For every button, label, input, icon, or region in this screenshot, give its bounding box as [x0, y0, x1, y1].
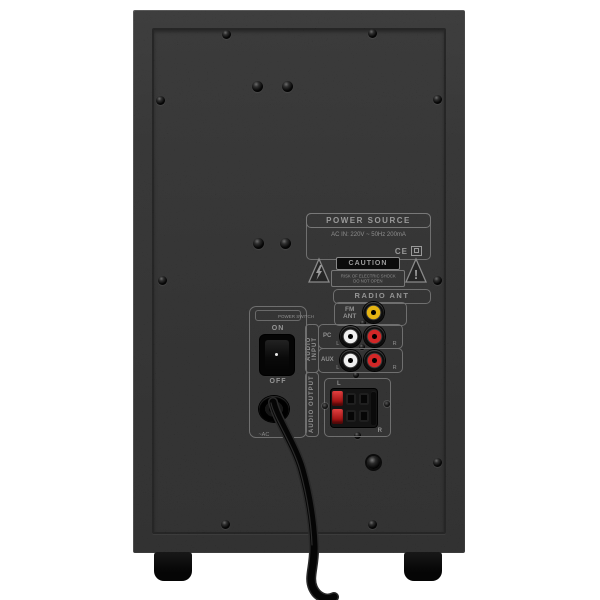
aux-right-jack — [364, 350, 385, 371]
pc-right-label: R — [392, 340, 396, 346]
terminal-hole — [346, 410, 356, 422]
screw — [433, 276, 442, 285]
terminal-hole — [359, 410, 369, 422]
aux-left-jack — [340, 350, 361, 371]
pc-left-label: L — [336, 340, 339, 346]
terminal-hole — [346, 393, 356, 405]
aux-right-label: R — [392, 364, 396, 370]
output-right-label: R — [378, 428, 382, 434]
keyhole-mount — [253, 238, 264, 249]
keyhole-mount — [252, 81, 263, 92]
screw — [222, 30, 231, 39]
switch-off-label: OFF — [250, 378, 306, 385]
pc-input-row: PC L R — [318, 324, 403, 349]
screw — [221, 520, 230, 529]
pc-row-name: PC — [323, 333, 331, 339]
power-switch-area: POWER SWITCH ON OFF ~AC — [249, 306, 307, 438]
bolt — [367, 456, 380, 469]
caution-label: ! CAUTION RISK OF ELECTRIC SHOCK DO NOT … — [306, 256, 429, 288]
ce-mark-icon: CE — [395, 247, 408, 256]
audio-output-label: AUDIO OUTPUT — [305, 372, 319, 437]
screw — [433, 95, 442, 104]
audio-output-box: L R — [324, 378, 391, 437]
screw — [384, 401, 390, 407]
power-source-title: POWER SOURCE — [306, 213, 431, 228]
caution-line2: DO NOT OPEN — [353, 280, 382, 282]
caution-title: CAUTION — [336, 257, 400, 270]
screw — [156, 96, 165, 105]
screw — [322, 403, 328, 409]
pc-right-jack — [364, 326, 385, 347]
terminal-clip-red — [332, 409, 343, 424]
keyhole-mount — [280, 238, 291, 249]
terminal-lever — [371, 391, 376, 425]
pc-left-jack — [340, 326, 361, 347]
switch-indicator-dot — [275, 353, 278, 356]
power-rocker-switch — [260, 335, 294, 375]
caution-line1: RISK OF ELECTRIC SHOCK — [341, 275, 396, 277]
screw — [368, 29, 377, 38]
power-source-spec: AC IN: 220V ~ 50Hz 200mA — [307, 232, 430, 238]
screw — [433, 458, 442, 467]
rubber-foot-left — [154, 552, 192, 581]
switch-on-label: ON — [250, 325, 306, 332]
svg-text:!: ! — [414, 267, 418, 282]
aux-input-row: AUX L R — [318, 348, 403, 373]
power-source-label: POWER SOURCE AC IN: 220V ~ 50Hz 200mA CE — [306, 213, 431, 260]
radio-ant-title: RADIO ANT — [334, 290, 430, 302]
fm-ant-line2: ANT — [343, 313, 356, 320]
double-insulation-icon — [411, 246, 422, 256]
product-photo-speaker-rear: POWER SOURCE AC IN: 220V ~ 50Hz 200mA CE… — [0, 0, 600, 600]
cable-grommet — [259, 396, 289, 422]
terminal-hole — [359, 393, 369, 405]
terminal-clip-red — [332, 391, 343, 406]
warning-exclamation-icon: ! — [405, 257, 427, 285]
keyhole-mount — [282, 81, 293, 92]
aux-row-name: AUX — [321, 357, 334, 363]
speaker-terminal-block — [331, 389, 377, 427]
aux-left-label: L — [336, 364, 339, 370]
screw — [368, 520, 377, 529]
warning-lightning-icon — [308, 257, 330, 285]
power-switch-label: POWER SWITCH — [278, 315, 314, 319]
rubber-foot-right — [404, 552, 442, 581]
output-left-label: L — [337, 381, 341, 387]
ac-label: ~AC — [258, 431, 269, 437]
screw — [158, 276, 167, 285]
fm-ant-line1: FM — [343, 306, 356, 313]
audio-input-label: AUDIO INPUT — [305, 324, 319, 373]
fm-ant-jack — [363, 302, 384, 323]
